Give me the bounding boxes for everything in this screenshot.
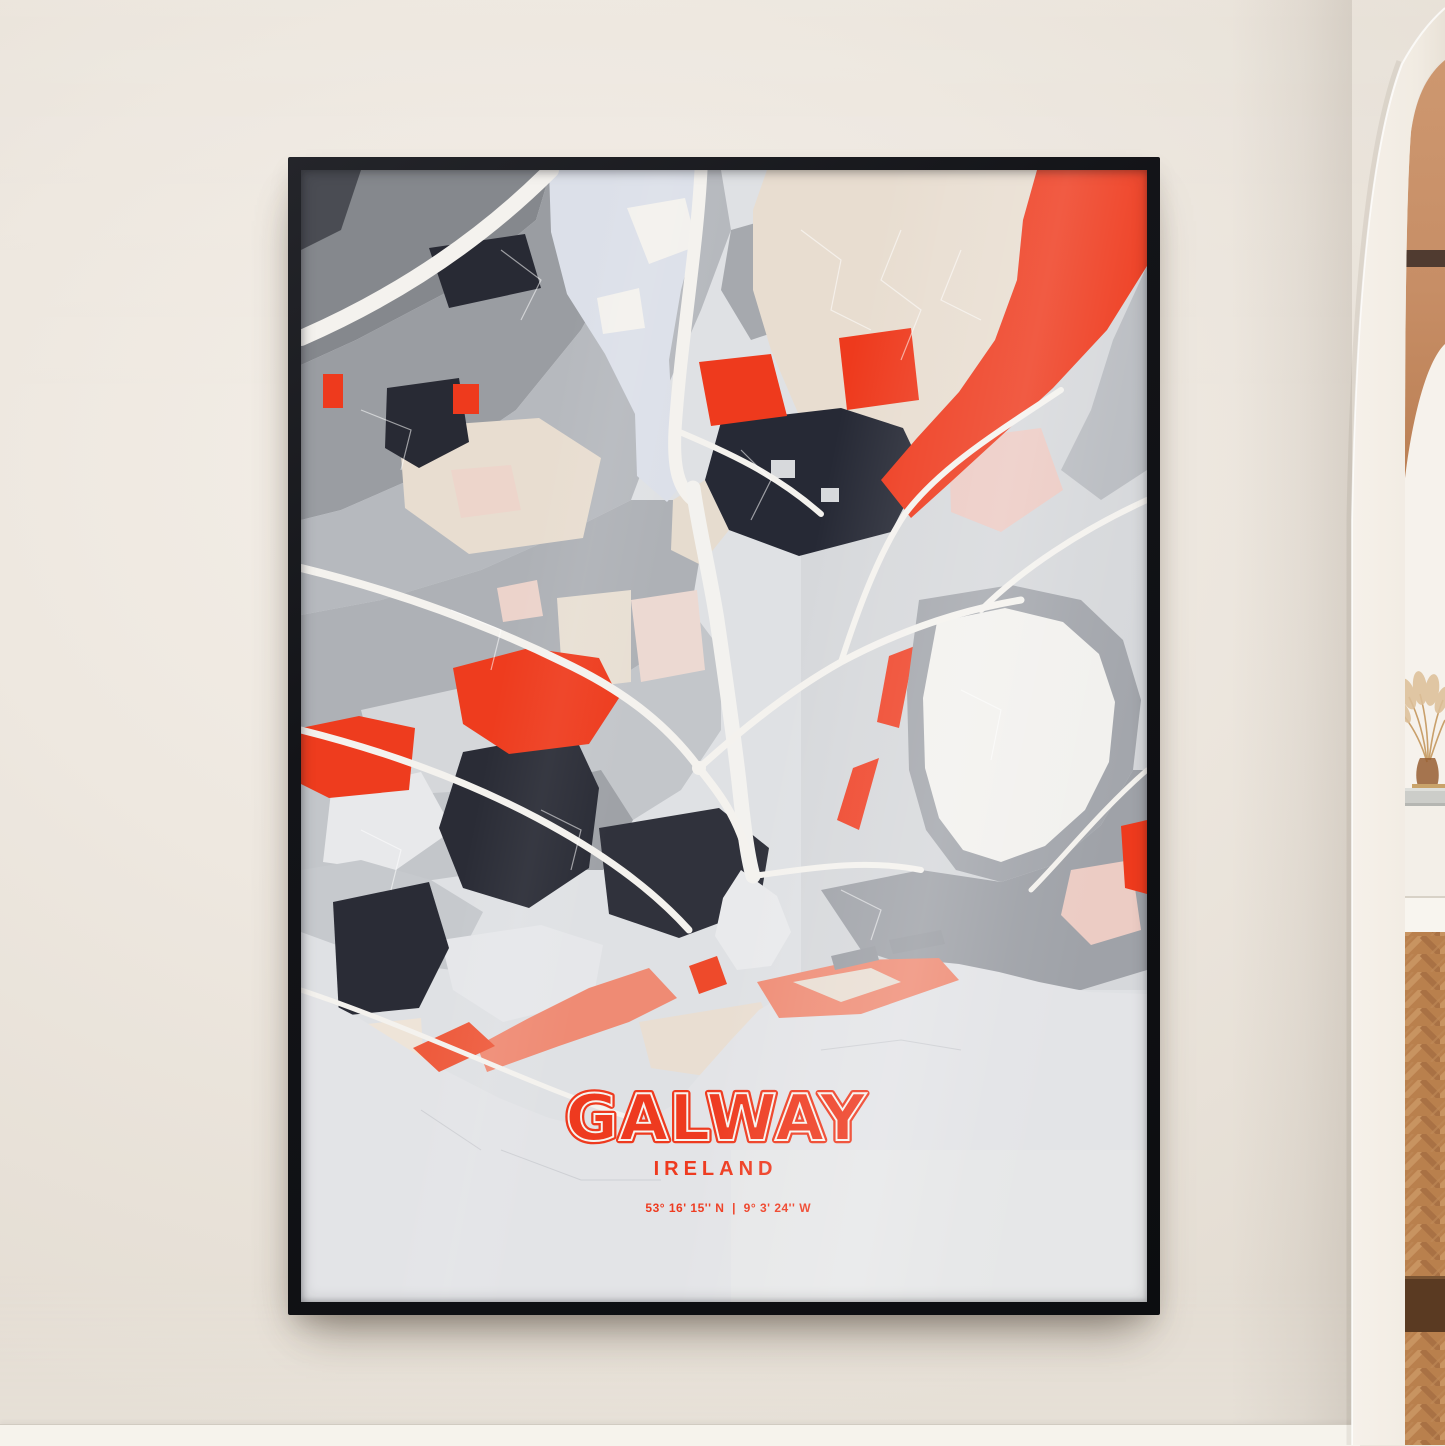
hallway-baseboard [1404, 898, 1445, 932]
marble-edge-shadow [1404, 803, 1445, 806]
poster: GALWAY GALWAY IRELAND 53° 16' 15'' N | 9… [301, 170, 1147, 1302]
baseboard-shadow-line [1404, 896, 1445, 898]
step-highlight [1404, 1276, 1445, 1279]
gold-tray [1412, 784, 1445, 788]
scene: { "poster": { "title": "GALWAY", "countr… [0, 0, 1445, 1445]
galway-map-art [301, 170, 1147, 1302]
amber-vase [1416, 758, 1438, 786]
marble-edge-highlight [1404, 788, 1445, 791]
lower-floor [1404, 1332, 1445, 1445]
picture-frame: GALWAY GALWAY IRELAND 53° 16' 15'' N | 9… [288, 157, 1160, 1315]
hallway-beam-shadow [1400, 250, 1445, 267]
hallway-wall [1404, 806, 1445, 898]
floor-dark-step [1404, 1276, 1445, 1332]
